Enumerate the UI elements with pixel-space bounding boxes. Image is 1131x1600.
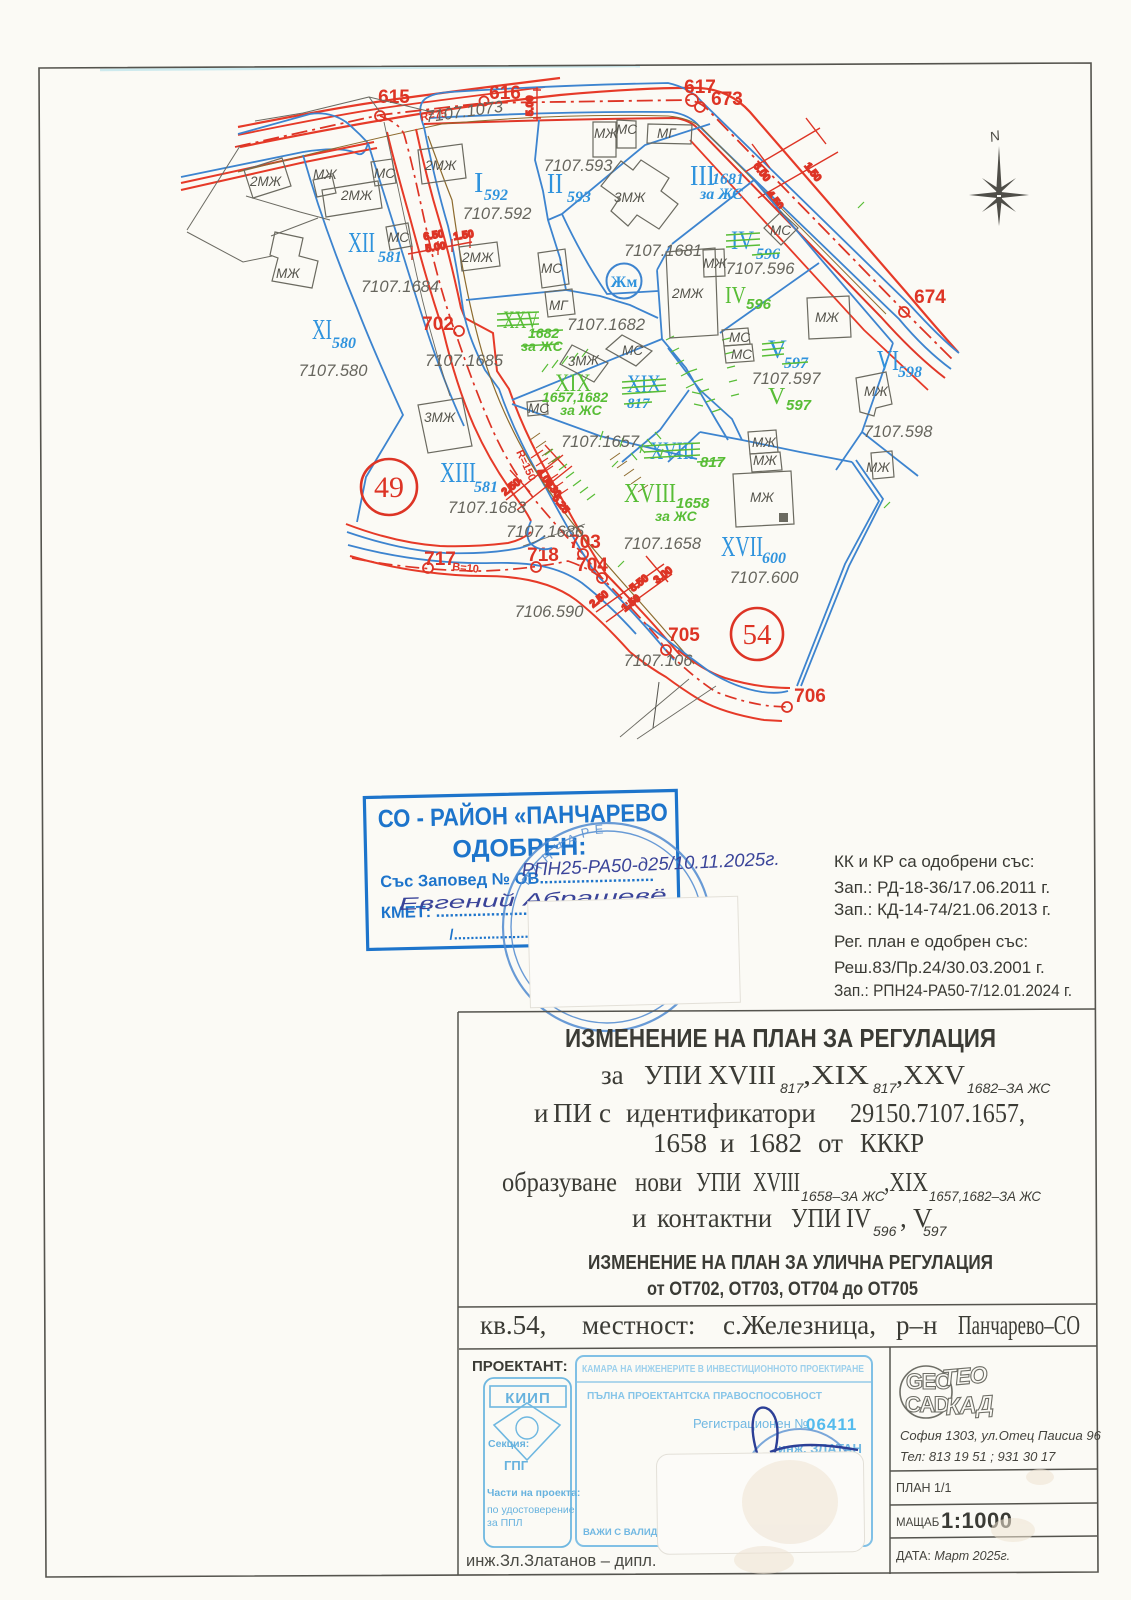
svg-text:МЖ: МЖ	[815, 310, 840, 325]
svg-text:идентификатори: идентификатори	[626, 1098, 816, 1128]
svg-text:581: 581	[378, 249, 402, 266]
svg-text:1658: 1658	[653, 1128, 707, 1158]
svg-text:596: 596	[746, 296, 772, 313]
svg-text:XVII: XVII	[721, 532, 763, 563]
svg-text:705: 705	[668, 625, 700, 646]
svg-text:ПЛАН 1/1: ПЛАН 1/1	[896, 1481, 951, 1495]
svg-text:597: 597	[923, 1223, 948, 1239]
svg-text:Тел: 813 19 51 ; 931 30 17: Тел: 813 19 51 ; 931 30 17	[900, 1449, 1056, 1464]
svg-text:600: 600	[762, 550, 786, 567]
svg-text:ГПГ: ГПГ	[504, 1458, 529, 1473]
svg-text:за: за	[601, 1060, 624, 1090]
svg-text:МЖ: МЖ	[866, 460, 891, 475]
svg-text:1658–ЗА ЖС: 1658–ЗА ЖС	[801, 1188, 886, 1204]
svg-text:КК и КР са одобрени със:: КК и КР са одобрени със:	[834, 852, 1034, 871]
svg-text:XIII: XIII	[440, 458, 476, 489]
svg-text:598: 598	[898, 364, 922, 381]
svg-text:КАМАРА НА ИНЖЕНЕРИТЕ В ИНВЕСТИ: КАМАРА НА ИНЖЕНЕРИТЕ В ИНВЕСТИЦИОННОТО П…	[582, 1363, 864, 1375]
svg-text:7106.590: 7106.590	[515, 603, 585, 621]
svg-text:МЖ: МЖ	[276, 266, 301, 281]
svg-text:ИЗМЕНЕНИЕ НА ПЛАН ЗА РЕГУЛАЦИЯ: ИЗМЕНЕНИЕ НА ПЛАН ЗА РЕГУЛАЦИЯ	[565, 1023, 996, 1053]
svg-text:1682–ЗА ЖС: 1682–ЗА ЖС	[967, 1080, 1051, 1096]
svg-text:ДАТА: Март 2025г.: ДАТА: Март 2025г.	[896, 1549, 1010, 1563]
svg-text:образуване: образуване	[502, 1167, 617, 1197]
svg-text:2МЖ: 2МЖ	[671, 286, 705, 301]
svg-text:МС: МС	[541, 261, 562, 276]
svg-text:МЖ: МЖ	[750, 490, 775, 505]
svg-text:2МЖ: 2МЖ	[424, 158, 458, 173]
svg-text:и: и	[534, 1098, 548, 1128]
svg-text:718: 718	[527, 545, 559, 566]
svg-text:1682: 1682	[748, 1128, 802, 1158]
svg-text:за ЖС: за ЖС	[521, 338, 564, 354]
svg-text:,XXV: ,XXV	[896, 1060, 966, 1090]
svg-text:КАД: КАД	[945, 1391, 995, 1421]
svg-text:ИЗМЕНЕНИЕ НА ПЛАН ЗА УЛИЧНА РЕ: ИЗМЕНЕНИЕ НА ПЛАН ЗА УЛИЧНА РЕГУЛАЦИЯ	[588, 1252, 993, 1274]
svg-text:Зап.: РД-18-36/17.06.2011 г.: Зап.: РД-18-36/17.06.2011 г.	[834, 878, 1050, 897]
svg-text:IV: IV	[725, 283, 747, 309]
svg-text:704: 704	[576, 555, 608, 576]
svg-text:кв.54,: кв.54,	[480, 1310, 546, 1340]
svg-text:за ЖС: за ЖС	[560, 402, 603, 418]
svg-text:Части на проекта:: Части на проекта:	[487, 1487, 580, 1499]
svg-text:7107.1686: 7107.1686	[506, 523, 585, 541]
svg-text:Панчарево–СО: Панчарево–СО	[958, 1310, 1080, 1340]
svg-text:593: 593	[567, 189, 591, 206]
svg-text:и: и	[720, 1128, 734, 1158]
svg-text:592: 592	[484, 187, 508, 204]
svg-text:580: 580	[332, 335, 356, 352]
svg-text:817: 817	[780, 1080, 805, 1096]
svg-text:I: I	[474, 168, 483, 199]
svg-text:597: 597	[786, 397, 812, 414]
svg-text:за ЖС: за ЖС	[655, 508, 698, 524]
svg-text:за ППЛ: за ППЛ	[487, 1517, 523, 1529]
svg-text:596: 596	[873, 1223, 897, 1239]
svg-text:с: с	[599, 1098, 611, 1128]
svg-text:МЖ: МЖ	[752, 435, 777, 450]
svg-text:7107.1657: 7107.1657	[561, 433, 640, 451]
svg-text:2МЖ: 2МЖ	[340, 188, 374, 203]
svg-text:МЖ: МЖ	[753, 453, 778, 468]
svg-text:7107.1685: 7107.1685	[425, 352, 504, 370]
svg-text:за ЖС: за ЖС	[699, 186, 743, 203]
svg-text:3МЖ: 3МЖ	[424, 410, 457, 425]
svg-text:Зап.: РПН24-РА50-7/12.01.2024: Зап.: РПН24-РА50-7/12.01.2024 г.	[834, 981, 1072, 1000]
svg-text:МАЩАБ: МАЩАБ	[896, 1517, 939, 1529]
svg-text:29150.7107.1657,: 29150.7107.1657,	[850, 1098, 1025, 1128]
svg-text:ПЪЛНА ПРОЕКТАНТСКА ПРАВОСПОСОБ: ПЪЛНА ПРОЕКТАНТСКА ПРАВОСПОСОБНОСТ	[587, 1390, 823, 1402]
svg-text:7107.1682: 7107.1682	[567, 316, 645, 334]
svg-text:7107.600: 7107.600	[730, 569, 800, 587]
svg-text:Жм: Жм	[611, 274, 638, 291]
svg-text:инж.Зл.Златанов – дипл.: инж.Зл.Златанов – дипл.	[466, 1552, 656, 1570]
svg-text:,XIX: ,XIX	[884, 1167, 928, 1197]
svg-text:МС: МС	[731, 347, 752, 362]
svg-text:,XIX: ,XIX	[803, 1060, 870, 1090]
svg-text:7107.106: 7107.106	[624, 652, 694, 670]
svg-text:7107.1683: 7107.1683	[448, 499, 527, 517]
svg-text:МС: МС	[388, 230, 409, 245]
svg-text:МЖ: МЖ	[864, 384, 889, 399]
svg-text:7107.592: 7107.592	[463, 205, 532, 223]
svg-text:54: 54	[743, 619, 773, 651]
svg-text:CAD: CAD	[905, 1392, 949, 1417]
svg-text:7107.580: 7107.580	[299, 362, 369, 380]
svg-text:7107.597: 7107.597	[752, 370, 822, 388]
svg-text:7107.1684: 7107.1684	[361, 278, 439, 296]
svg-text:с.Железница,: с.Железница,	[723, 1310, 876, 1340]
svg-text:615: 615	[378, 87, 410, 108]
svg-text:нови: нови	[635, 1167, 682, 1197]
svg-text:МС: МС	[616, 122, 637, 137]
svg-text:2МЖ: 2МЖ	[461, 250, 495, 265]
svg-text:местност:: местност:	[582, 1310, 695, 1340]
svg-text:Зап.: КД-14-74/21.06.2013 г.: Зап.: КД-14-74/21.06.2013 г.	[834, 900, 1051, 919]
svg-text:673: 673	[711, 89, 743, 110]
svg-text:VI: VI	[877, 346, 899, 377]
svg-text:по удостоверение: по удостоверение	[487, 1504, 575, 1516]
svg-text:706: 706	[794, 686, 826, 707]
svg-text:702: 702	[422, 314, 454, 335]
svg-text:717: 717	[424, 549, 456, 570]
svg-text:Реш.83/Пр.24/30.03.2001 г.: Реш.83/Пр.24/30.03.2001 г.	[834, 958, 1045, 977]
svg-text:от: от	[818, 1128, 843, 1158]
svg-text:Е: Е	[594, 821, 604, 837]
svg-text:ПРОЕКТАНТ:: ПРОЕКТАНТ:	[472, 1358, 568, 1375]
svg-text:XVIII: XVIII	[753, 1167, 800, 1197]
svg-text:2МЖ: 2МЖ	[249, 174, 283, 189]
svg-text:817: 817	[873, 1080, 898, 1096]
svg-text:IV: IV	[846, 1203, 871, 1233]
svg-text:7107.1681: 7107.1681	[624, 242, 702, 260]
svg-text:Секция:: Секция:	[488, 1438, 529, 1450]
svg-text:XVIII: XVIII	[624, 478, 676, 508]
svg-text:МГ: МГ	[549, 298, 569, 313]
svg-text:TEO: TEO	[941, 1361, 988, 1391]
svg-text:КККР: КККР	[860, 1128, 924, 1158]
svg-text:МС: МС	[770, 223, 791, 238]
svg-text:МЖ: МЖ	[313, 167, 338, 182]
svg-text:МС: МС	[374, 166, 395, 181]
svg-text:II: II	[547, 169, 563, 200]
svg-text:ПИ: ПИ	[553, 1098, 592, 1128]
svg-text:1657,1682–ЗА ЖС: 1657,1682–ЗА ЖС	[929, 1188, 1042, 1204]
svg-text:УПИ: УПИ	[644, 1060, 702, 1090]
svg-text:49: 49	[374, 471, 404, 504]
svg-text:и: и	[632, 1203, 646, 1233]
svg-text:МЖ: МЖ	[703, 256, 728, 271]
svg-text:от ОТ702, ОТ703, ОТ704 до ОТ70: от ОТ702, ОТ703, ОТ704 до ОТ705	[647, 1279, 918, 1300]
svg-text:817: 817	[700, 454, 726, 471]
svg-text:5.00: 5.00	[524, 95, 536, 116]
svg-text:XI: XI	[312, 315, 332, 346]
svg-text:контактни: контактни	[657, 1203, 772, 1233]
svg-text:МС: МС	[622, 343, 643, 358]
svg-text:XVIII: XVIII	[708, 1060, 776, 1090]
svg-text:МГ: МГ	[657, 126, 677, 141]
svg-text:581: 581	[474, 479, 498, 496]
svg-text:УПИ: УПИ	[791, 1203, 841, 1233]
svg-text:р–н: р–н	[896, 1310, 937, 1340]
svg-text:София 1303, ул.Отец Паисиа 96: София 1303, ул.Отец Паисиа 96	[900, 1428, 1102, 1443]
svg-text:Рег. план е одобрен със:: Рег. план е одобрен със:	[834, 932, 1028, 951]
svg-text:МС: МС	[729, 330, 750, 345]
svg-text:7107.1658: 7107.1658	[623, 535, 702, 553]
svg-text:XII: XII	[348, 228, 375, 259]
svg-text:7107.598: 7107.598	[864, 423, 934, 441]
svg-text:674: 674	[914, 287, 946, 308]
svg-text:3МЖ: 3МЖ	[567, 352, 600, 369]
svg-text:V: V	[768, 384, 786, 410]
svg-text:УПИ: УПИ	[696, 1167, 741, 1197]
svg-text:3МЖ: 3МЖ	[614, 190, 647, 205]
